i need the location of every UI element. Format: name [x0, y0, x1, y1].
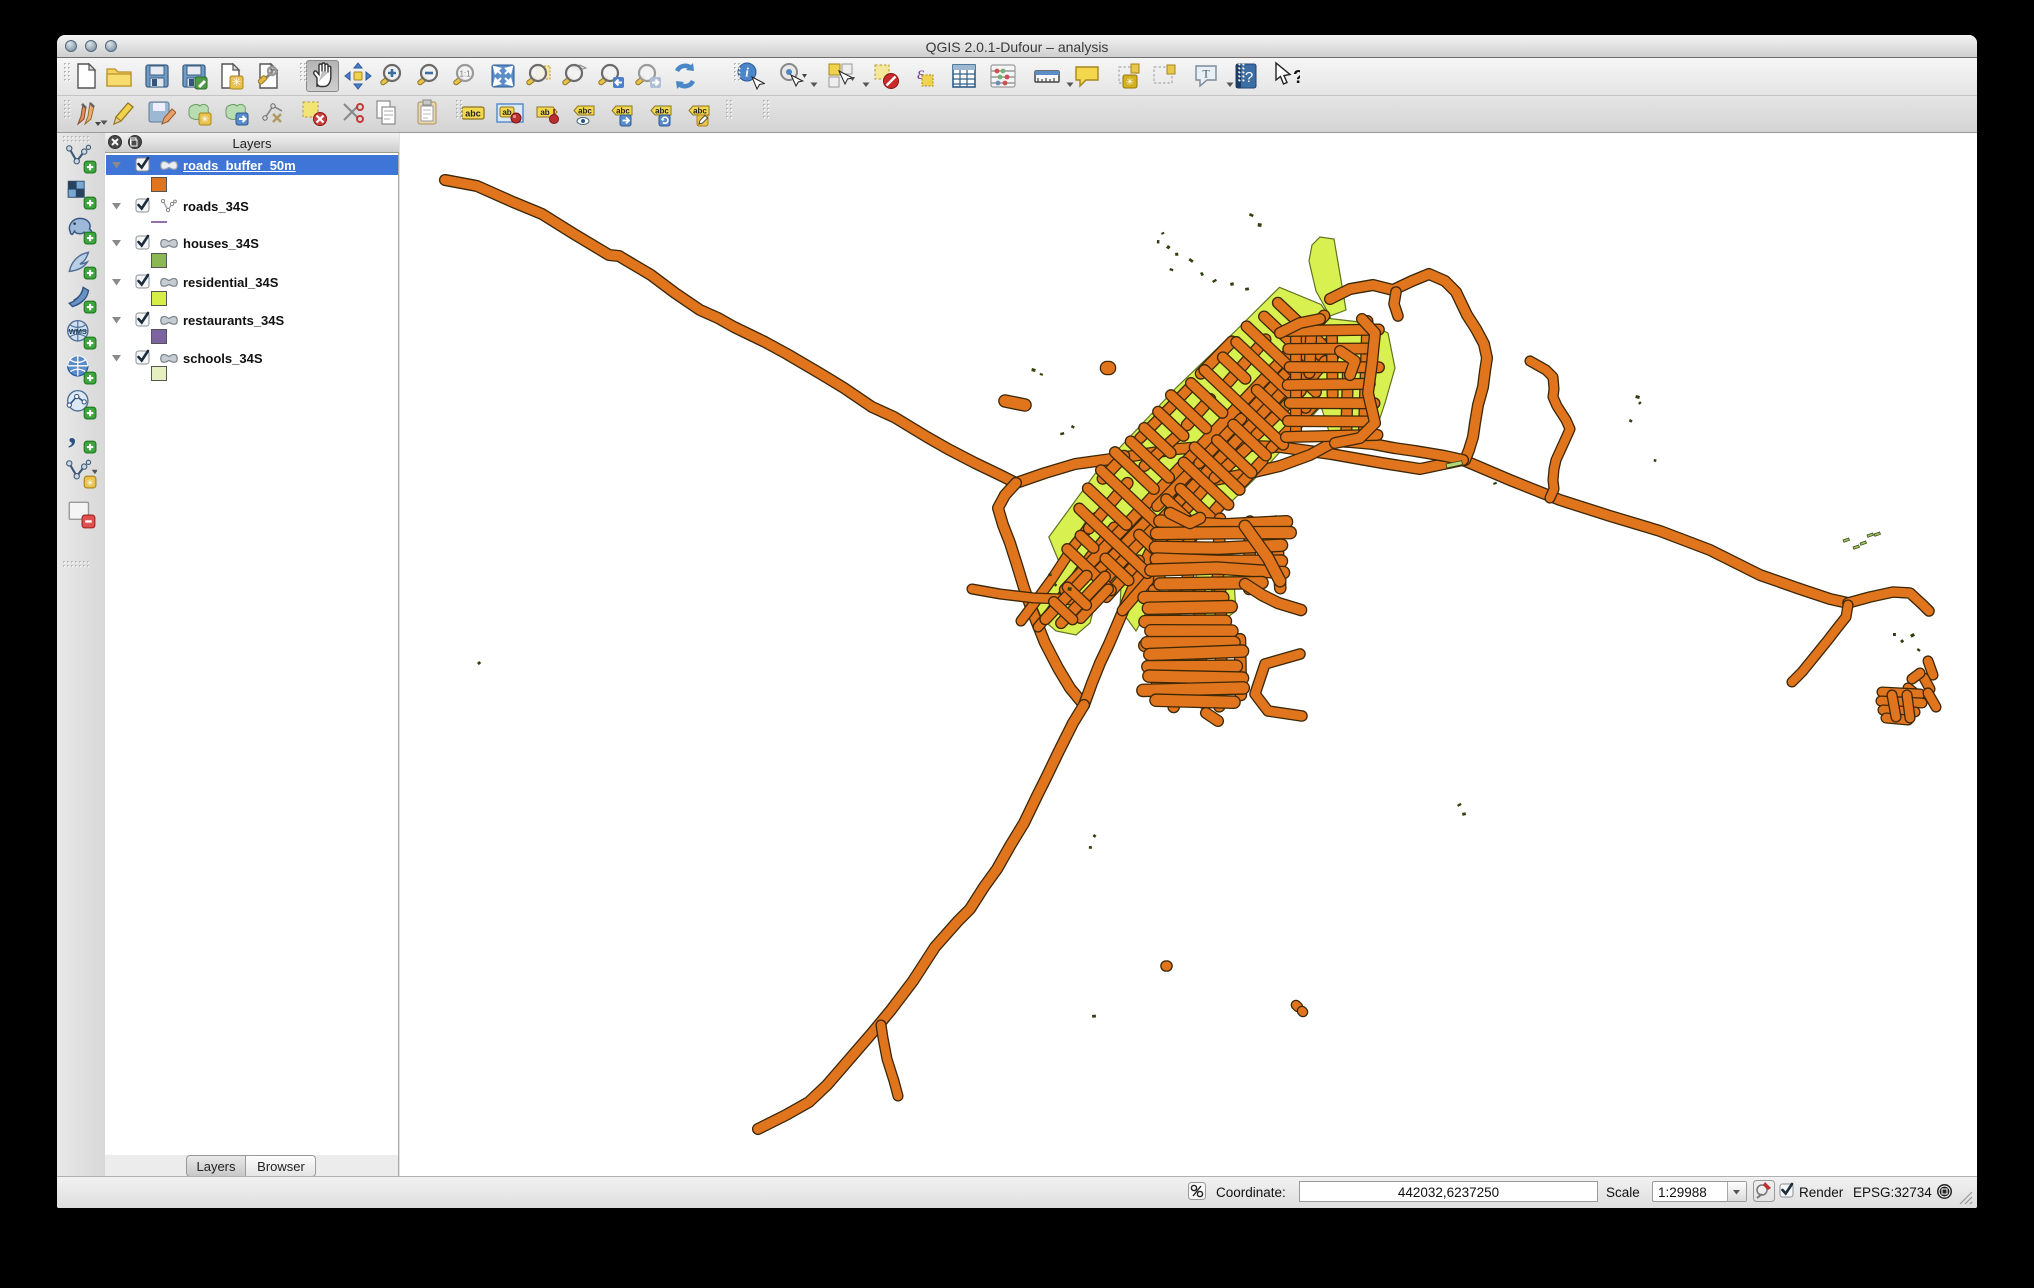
svg-text:ab: ab [502, 108, 511, 117]
svg-text:✳: ✳ [201, 115, 209, 126]
svg-text:abc: abc [655, 107, 669, 116]
svg-text:?: ? [1293, 67, 1300, 87]
svg-text:T: T [1202, 67, 1210, 81]
svg-text:,: , [68, 422, 76, 449]
svg-text:1:1: 1:1 [459, 70, 471, 79]
svg-text:ab: ab [540, 108, 549, 117]
svg-text:WMS: WMS [69, 327, 87, 336]
svg-text:abc: abc [465, 109, 481, 119]
svg-text:abc: abc [578, 107, 592, 116]
svg-text:✳: ✳ [1126, 77, 1134, 88]
svg-text:✳: ✳ [86, 478, 94, 489]
svg-text:abc: abc [616, 107, 630, 116]
svg-text:i: i [745, 65, 749, 80]
svg-text:✳: ✳ [231, 75, 241, 89]
svg-text:abc: abc [693, 107, 707, 116]
